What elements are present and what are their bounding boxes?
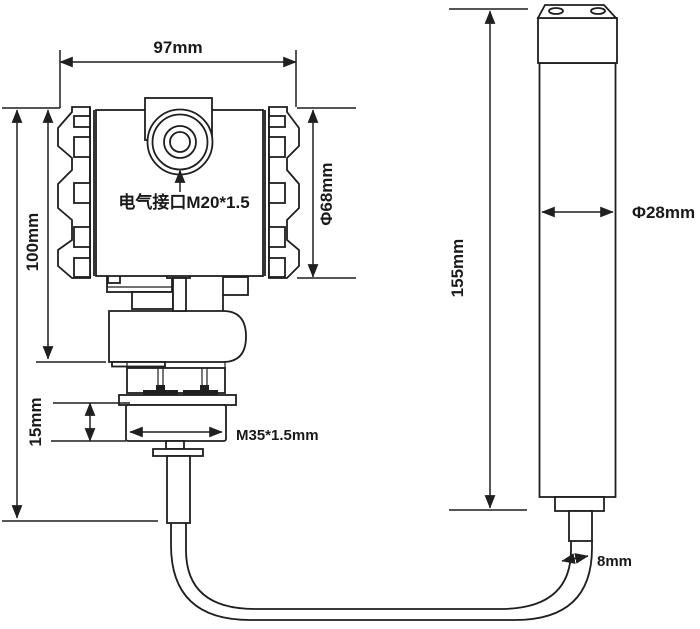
cable (171, 522, 592, 620)
thread-nut (126, 405, 226, 441)
side-block (223, 277, 248, 295)
dim-label-probe-length: 155mm (448, 239, 467, 298)
level-transmitter-dimension-drawing: 97mm 100mm Φ68mm 电气接口M20*1.5 15mm M35*1.… (0, 0, 700, 629)
probe-body (540, 63, 616, 497)
dim-label-width: 97mm (153, 38, 202, 57)
probe-neck (569, 511, 592, 541)
dimension-8mm (562, 556, 588, 561)
dimensions (2, 9, 613, 561)
right-end-cap (265, 107, 299, 278)
display-window (148, 110, 213, 175)
transmitter-head (58, 98, 299, 278)
flange-box (127, 368, 225, 393)
bolt-head (156, 385, 165, 390)
label-thread-spec: M35*1.5mm (236, 427, 319, 444)
housing-lip (112, 362, 165, 367)
collar (153, 449, 203, 456)
drawing-canvas: 97mm 100mm Φ68mm 电气接口M20*1.5 15mm M35*1.… (0, 0, 700, 629)
neck-stem (173, 278, 186, 311)
bolt-head (200, 385, 209, 390)
process-connection (109, 311, 246, 523)
dim-label-probe-diameter: Φ28mm (632, 203, 695, 222)
dim-label-housing-height: 100mm (23, 213, 42, 272)
label-electrical-port: 电气接口M20*1.5 (118, 192, 249, 212)
dim-label-cable-diameter: 8mm (597, 553, 632, 570)
dim-label-housing-diameter: Φ68mm (317, 162, 336, 225)
mounting-plate (119, 395, 236, 405)
probe (538, 5, 617, 541)
left-end-cap (58, 107, 94, 278)
probe-step (555, 497, 604, 511)
dim-label-thread-length: 15mm (26, 397, 45, 446)
cable-gland-tube (167, 456, 190, 523)
probe-cap (538, 18, 617, 63)
sensor-housing (109, 311, 246, 362)
stem (166, 441, 184, 449)
dimension-15mm (51, 403, 130, 441)
